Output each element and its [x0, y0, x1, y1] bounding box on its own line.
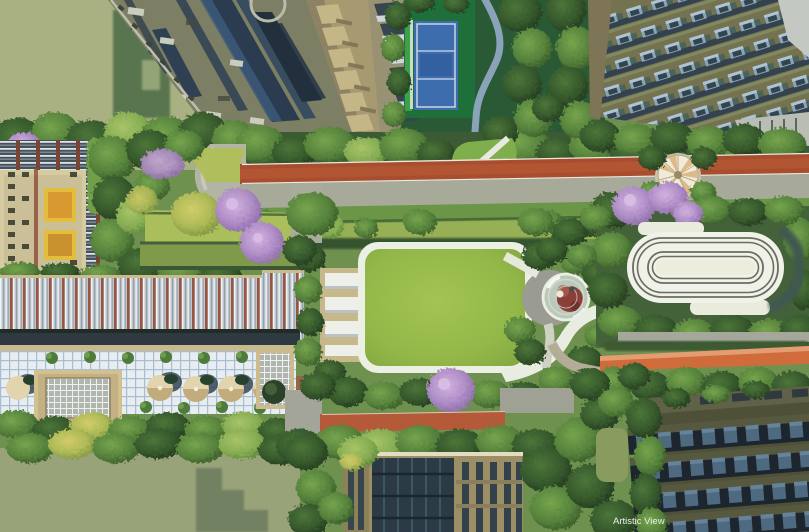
- svg-text:Artistic View: Artistic View: [613, 516, 665, 527]
